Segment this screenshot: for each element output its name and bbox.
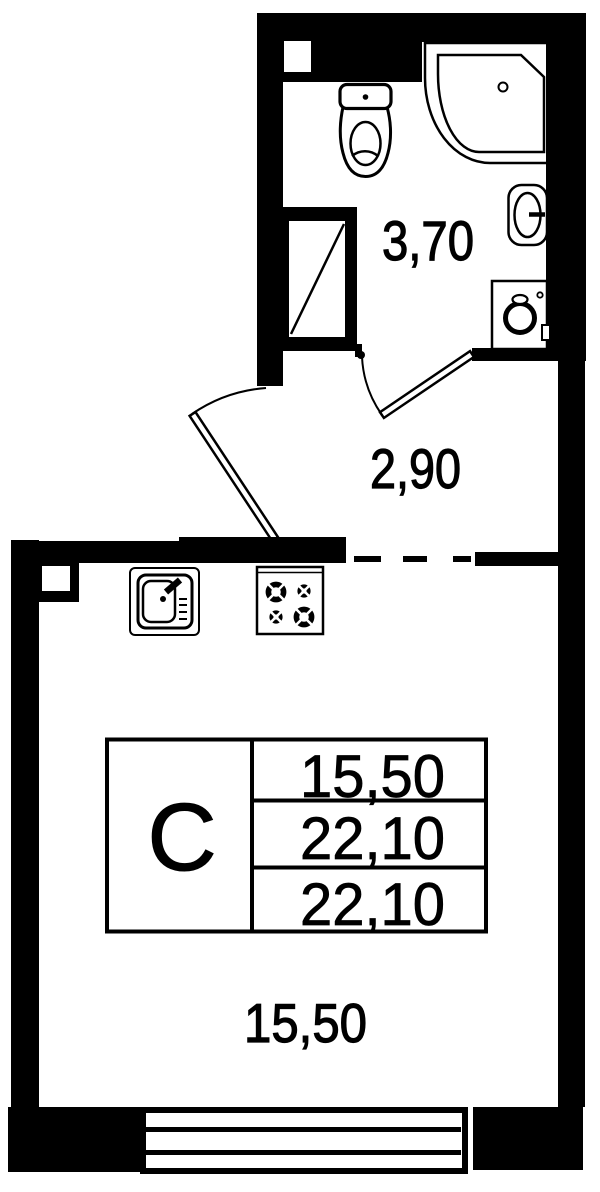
svg-text:2,90: 2,90 — [370, 437, 461, 500]
svg-text:15,50: 15,50 — [300, 743, 445, 810]
svg-text:22,10: 22,10 — [300, 805, 445, 872]
svg-text:15,50: 15,50 — [244, 992, 367, 1054]
svg-text:3,70: 3,70 — [382, 209, 474, 272]
svg-text:22,10: 22,10 — [300, 871, 445, 938]
svg-text:С: С — [147, 784, 216, 891]
